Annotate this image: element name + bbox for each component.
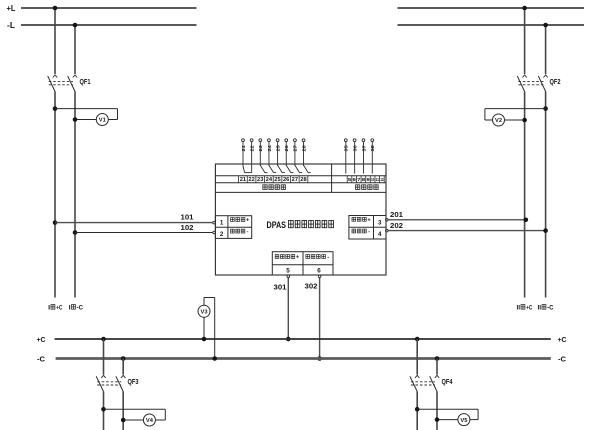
svg-text:11: 11: [376, 177, 380, 182]
svg-text:QF3: QF3: [128, 377, 139, 386]
svg-text:5: 5: [286, 268, 290, 275]
svg-text:23: 23: [258, 145, 263, 152]
svg-text:22: 22: [249, 145, 254, 152]
svg-text:102: 102: [181, 223, 194, 232]
svg-text:-L: -L: [7, 21, 15, 30]
svg-text:28: 28: [300, 177, 307, 183]
svg-text:21: 21: [240, 177, 247, 183]
svg-text:V4: V4: [146, 418, 154, 424]
svg-text:V5: V5: [460, 418, 468, 424]
svg-text:10: 10: [371, 177, 375, 182]
svg-text:24: 24: [267, 145, 272, 152]
svg-text:II: II: [517, 305, 521, 311]
svg-text:301: 301: [274, 282, 287, 291]
svg-text:QF2: QF2: [550, 77, 561, 86]
svg-text:V3: V3: [201, 310, 209, 316]
svg-text:-C: -C: [558, 354, 567, 363]
svg-text:26: 26: [284, 145, 289, 152]
svg-text:22: 22: [248, 177, 255, 183]
svg-text:QF1: QF1: [80, 77, 91, 86]
svg-text:202: 202: [390, 221, 403, 230]
svg-text:-: -: [247, 229, 249, 235]
svg-text:26: 26: [283, 177, 290, 183]
svg-text:-: -: [368, 229, 370, 235]
svg-text:+C: +C: [56, 305, 63, 311]
svg-text:+C: +C: [37, 335, 47, 344]
svg-text:6: 6: [317, 268, 321, 275]
svg-text:-C: -C: [37, 354, 46, 363]
svg-text:12: 12: [380, 177, 384, 182]
svg-text:201: 201: [390, 210, 403, 219]
svg-text:-C: -C: [77, 305, 84, 311]
svg-text:3: 3: [378, 219, 382, 226]
svg-text:+C: +C: [526, 305, 533, 311]
svg-text:101: 101: [181, 213, 194, 222]
svg-text:+L: +L: [7, 4, 16, 13]
svg-text:27: 27: [293, 145, 298, 152]
svg-text:+C: +C: [558, 335, 568, 344]
svg-text:36: 36: [352, 145, 357, 152]
svg-text:38: 38: [370, 145, 375, 152]
svg-text:1: 1: [220, 219, 224, 226]
svg-text:4: 4: [378, 231, 382, 238]
svg-text:35: 35: [344, 145, 349, 152]
svg-text:V1: V1: [99, 118, 107, 124]
svg-text:24: 24: [266, 177, 273, 183]
svg-text:21: 21: [241, 145, 246, 152]
svg-text:23: 23: [257, 177, 264, 183]
svg-text:37: 37: [361, 145, 366, 152]
svg-text:25: 25: [275, 145, 280, 152]
svg-text:-C: -C: [547, 305, 554, 311]
svg-text:25: 25: [274, 177, 281, 183]
svg-text:27: 27: [292, 177, 299, 183]
svg-text:302: 302: [305, 281, 318, 290]
svg-text:-: -: [327, 255, 329, 261]
svg-text:II: II: [538, 305, 542, 311]
svg-text:2: 2: [220, 231, 224, 238]
svg-text:V2: V2: [495, 118, 502, 124]
svg-text:28: 28: [301, 145, 306, 152]
svg-text:DPAS: DPAS: [267, 220, 287, 230]
svg-text:QF4: QF4: [442, 377, 453, 386]
